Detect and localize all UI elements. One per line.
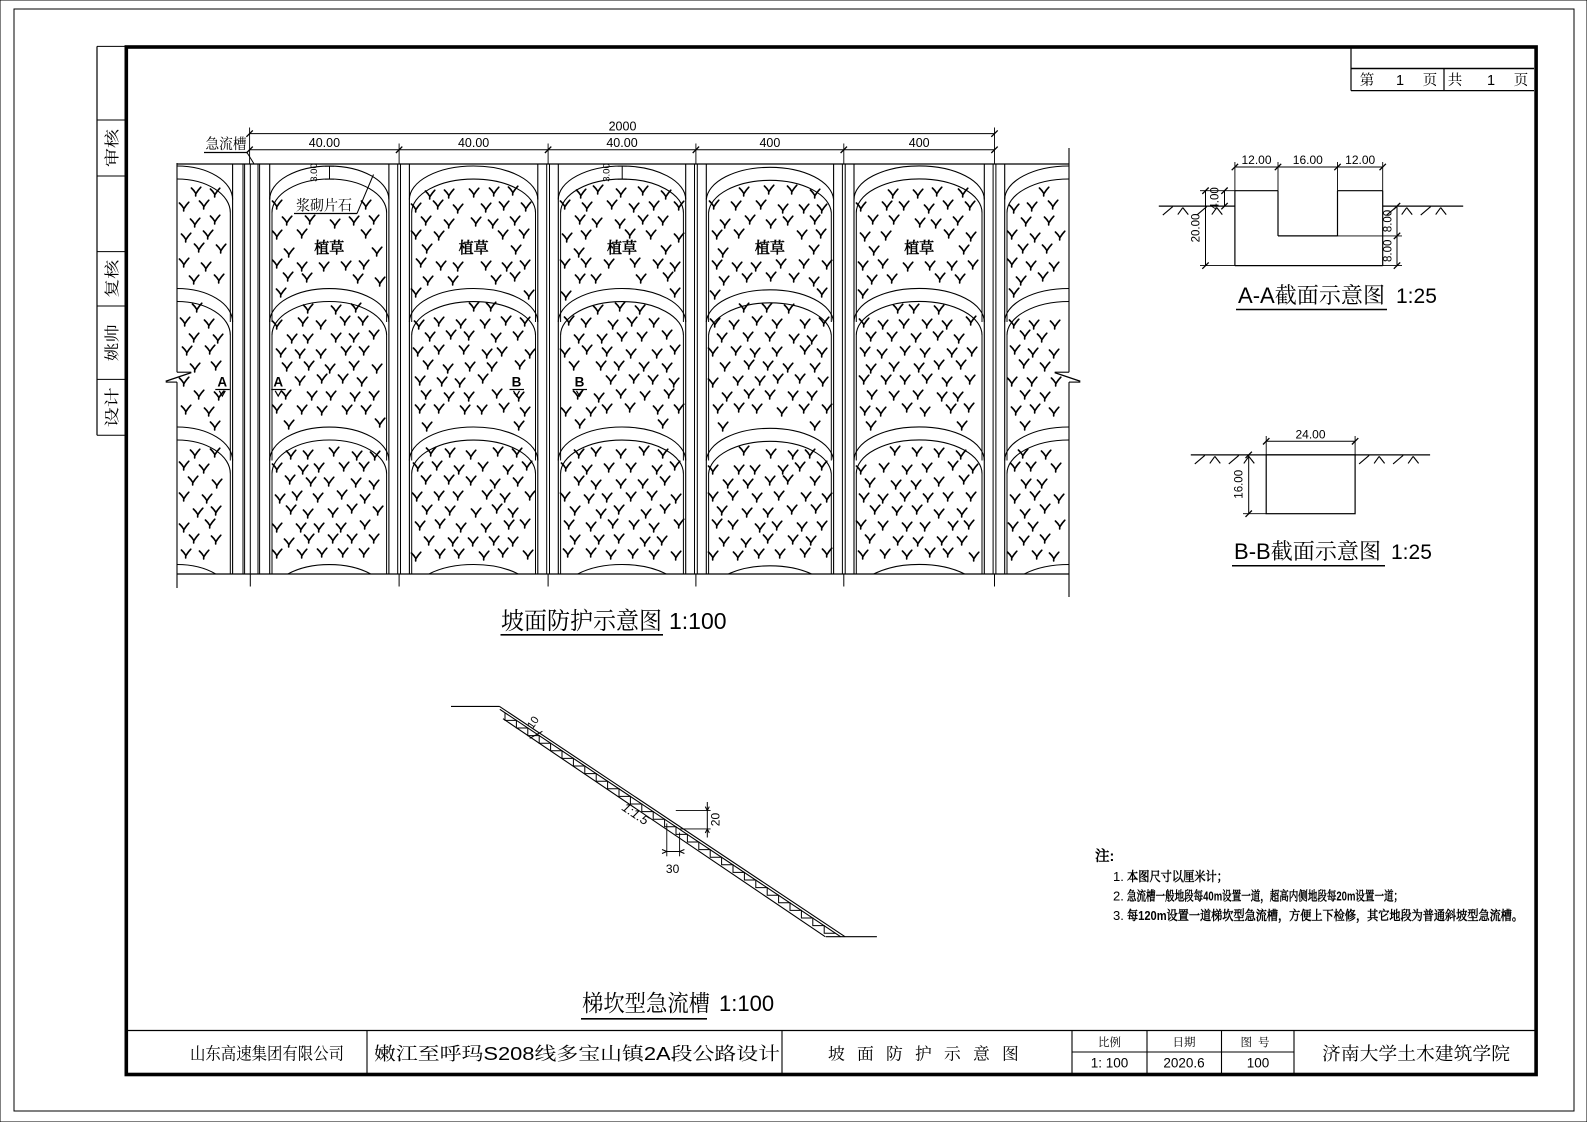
svg-text:3.00: 3.00	[602, 163, 613, 182]
svg-text:日期: 日期	[1173, 1035, 1196, 1049]
svg-text:复核: 复核	[103, 259, 121, 298]
svg-text:第: 第	[1360, 72, 1375, 89]
svg-text:400: 400	[759, 136, 780, 150]
svg-text:B: B	[512, 375, 522, 390]
svg-text:40.00: 40.00	[309, 136, 340, 150]
svg-text:24.00: 24.00	[1295, 428, 1325, 442]
svg-text:100: 100	[1247, 1056, 1270, 1071]
svg-text:16.00: 16.00	[1234, 470, 1246, 499]
svg-text:植草: 植草	[607, 238, 637, 257]
svg-text:20.00: 20.00	[1191, 214, 1203, 243]
svg-text:设计: 设计	[104, 387, 121, 427]
svg-text:20: 20	[709, 813, 723, 827]
svg-text:B: B	[575, 375, 585, 390]
svg-text:审核: 审核	[103, 128, 121, 167]
svg-text:梯坎型急流槽: 梯坎型急流槽	[582, 990, 710, 1016]
svg-text:2020.6: 2020.6	[1163, 1056, 1204, 1071]
svg-text:植草: 植草	[459, 238, 489, 257]
svg-text:比例: 比例	[1098, 1035, 1121, 1049]
svg-text:3.: 3.	[1113, 908, 1124, 923]
svg-text:B-B截面示意图: B-B截面示意图	[1234, 539, 1381, 564]
svg-text:A-A截面示意图: A-A截面示意图	[1238, 283, 1385, 308]
svg-text:每120m设置一道梯坎型急流槽，方便上下检修，其它地段为普通: 每120m设置一道梯坎型急流槽，方便上下检修，其它地段为普通斜坡型急流槽。	[1127, 908, 1523, 924]
svg-text:坡面防护示意图: 坡面防护示意图	[828, 1045, 1031, 1064]
svg-text:A: A	[217, 375, 227, 390]
svg-text:A: A	[273, 375, 283, 390]
svg-text:济南大学土木建筑学院: 济南大学土木建筑学院	[1322, 1043, 1510, 1064]
svg-text:1: 1	[1487, 73, 1495, 89]
svg-text:40.00: 40.00	[458, 136, 489, 150]
svg-text:1: 100: 1: 100	[1091, 1056, 1129, 1071]
svg-text:2.: 2.	[1113, 889, 1124, 904]
svg-text:植草: 植草	[904, 238, 934, 257]
svg-text:4.00: 4.00	[1210, 187, 1222, 209]
svg-text:页: 页	[1514, 72, 1529, 89]
svg-text:2000: 2000	[609, 120, 637, 134]
svg-text:1:25: 1:25	[1391, 541, 1432, 564]
svg-text:浆砌片石: 浆砌片石	[296, 197, 352, 215]
svg-text:1:100: 1:100	[669, 608, 727, 634]
svg-text:共: 共	[1448, 72, 1463, 89]
svg-text:页: 页	[1423, 72, 1438, 89]
svg-text:急流槽一般地段每40m设置一道，超高内侧地段每20m设置一道: 急流槽一般地段每40m设置一道，超高内侧地段每20m设置一道；	[1127, 889, 1403, 905]
svg-text:注:: 注:	[1095, 847, 1114, 865]
svg-text:8.00: 8.00	[1383, 240, 1395, 262]
svg-text:400: 400	[909, 136, 930, 150]
svg-text:12.00: 12.00	[1241, 153, 1271, 167]
svg-text:12.00: 12.00	[1345, 153, 1375, 167]
svg-text:坡面防护示意图: 坡面防护示意图	[501, 608, 662, 635]
svg-text:植草: 植草	[314, 238, 344, 257]
svg-text:1:100: 1:100	[719, 991, 774, 1016]
svg-text:本图尺寸以厘米计；: 本图尺寸以厘米计；	[1127, 869, 1228, 884]
svg-text:山东高速集团有限公司: 山东高速集团有限公司	[190, 1045, 344, 1064]
svg-text:8.00: 8.00	[1383, 210, 1395, 232]
svg-text:30: 30	[666, 862, 680, 876]
svg-text:植草: 植草	[755, 238, 785, 257]
svg-text:40.00: 40.00	[606, 136, 637, 150]
svg-text:1.: 1.	[1113, 869, 1124, 884]
svg-text:1: 1	[1396, 73, 1404, 89]
svg-text:图号: 图号	[1241, 1036, 1276, 1049]
svg-text:嫩江至呼玛S208线多宝山镇2A段公路设计: 嫩江至呼玛S208线多宝山镇2A段公路设计	[374, 1044, 780, 1064]
svg-text:1:25: 1:25	[1396, 285, 1437, 308]
svg-text:16.00: 16.00	[1293, 153, 1323, 167]
svg-text:急流槽: 急流槽	[206, 136, 247, 153]
svg-text:3.00: 3.00	[309, 163, 320, 182]
svg-text:姚帅: 姚帅	[103, 324, 121, 361]
